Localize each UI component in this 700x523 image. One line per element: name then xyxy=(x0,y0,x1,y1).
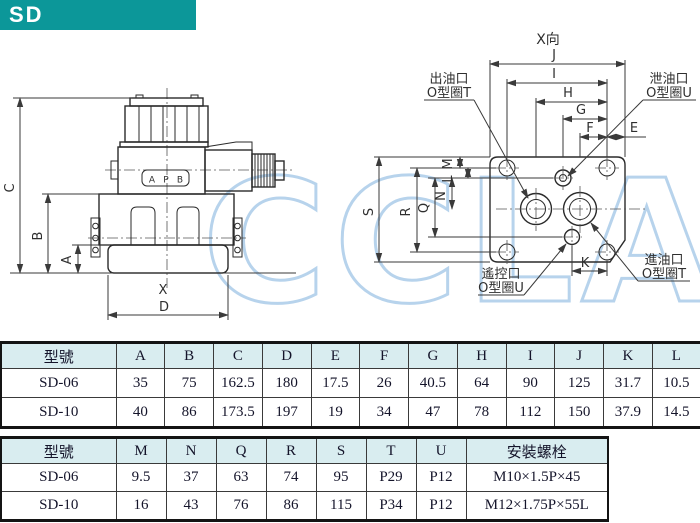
value-cell: 150 xyxy=(555,398,604,428)
value-cell: 26 xyxy=(360,369,409,398)
right-view-top-dimensions: J I H G F E xyxy=(490,48,646,157)
model-cell: SD-06 xyxy=(1,464,116,492)
value-cell: 16 xyxy=(116,492,166,521)
page-title: SD xyxy=(0,0,196,30)
model-cell: SD-10 xyxy=(1,492,116,521)
port-letter-b: B xyxy=(177,176,183,186)
bolt-cell: M10×1.5P×45 xyxy=(466,464,608,492)
dim-label-H: H xyxy=(563,86,573,101)
table2-header-cell: T xyxy=(366,438,416,464)
left-view-centerlines xyxy=(88,88,293,288)
inlet-port-label: 進油口 xyxy=(644,253,683,268)
dim-label-I: I xyxy=(552,67,556,82)
dim-label-C: C xyxy=(3,183,18,192)
value-cell: 197 xyxy=(262,398,311,428)
value-cell: 40 xyxy=(116,398,165,428)
table2-header-cell: U xyxy=(416,438,466,464)
value-cell: 86 xyxy=(165,398,214,428)
table2-header-cell: Q xyxy=(216,438,266,464)
inlet-oring-label: O型圈T xyxy=(642,267,686,282)
outlet-port-label: 出油口 xyxy=(429,72,468,87)
value-cell: 74 xyxy=(266,464,316,492)
left-view-dimensions: C B A X D xyxy=(3,98,296,320)
value-cell: 64 xyxy=(457,369,506,398)
value-cell: P12 xyxy=(416,492,466,521)
dim-label-X: X xyxy=(159,283,168,298)
value-cell: 173.5 xyxy=(214,398,263,428)
remote-port-label: 遙控口 xyxy=(481,267,520,282)
table1-header-cell: C xyxy=(214,343,263,369)
dim-label-N: N xyxy=(434,191,449,201)
drain-oring-label: O型圈U xyxy=(646,86,692,101)
table1-header-cell: G xyxy=(409,343,458,369)
dim-label-M: M xyxy=(441,158,456,169)
datasheet-page: SD CCLAIR xyxy=(0,0,700,523)
value-cell: P34 xyxy=(366,492,416,521)
value-cell: 125 xyxy=(555,369,604,398)
outlet-oring-label: O型圈T xyxy=(427,86,471,101)
model-cell: SD-10 xyxy=(1,398,116,428)
dim-label-A: A xyxy=(60,255,75,264)
table1-header-cell: D xyxy=(262,343,311,369)
table1-row-sd10: SD-10 40 86 173.5 197 19 34 47 78 112 15… xyxy=(1,398,700,428)
plate-ports xyxy=(499,160,615,260)
series-banner: SD xyxy=(0,0,196,30)
table1-header-cell: B xyxy=(165,343,214,369)
value-cell: P29 xyxy=(366,464,416,492)
right-view-bottom-dimension: K xyxy=(572,246,607,276)
left-view-drawing: A P B C B A X D xyxy=(3,88,296,320)
table1-header-cell: H xyxy=(457,343,506,369)
dim-label-S: S xyxy=(362,208,377,216)
table2-header-cell: N xyxy=(166,438,216,464)
table1-row-sd06: SD-06 35 75 162.5 180 17.5 26 40.5 64 90… xyxy=(1,369,700,398)
dim-label-Q: Q xyxy=(417,203,432,213)
value-cell: 37.9 xyxy=(604,398,653,428)
value-cell: 9.5 xyxy=(116,464,166,492)
dim-label-G: G xyxy=(576,103,586,118)
value-cell: 95 xyxy=(316,464,366,492)
value-cell: 10.5 xyxy=(652,369,700,398)
table1-header-cell: K xyxy=(604,343,653,369)
drain-port-label: 泄油口 xyxy=(649,72,688,87)
port-label-plate: A P B xyxy=(142,170,189,186)
value-cell: 34 xyxy=(360,398,409,428)
right-view-left-dimensions: S R Q N M L xyxy=(362,157,562,262)
value-cell: 63 xyxy=(216,464,266,492)
value-cell: 90 xyxy=(506,369,555,398)
table2-row-sd10: SD-10 16 43 76 86 115 P34 P12 M12×1.75P×… xyxy=(1,492,608,521)
value-cell: 115 xyxy=(316,492,366,521)
dimension-drawings: A P B C B A X D xyxy=(0,30,700,330)
spec-table-dimensions-a-l: 型號 A B C D E F G H I J K L SD-06 35 75 1… xyxy=(0,341,700,429)
table1-header-cell: A xyxy=(116,343,165,369)
value-cell: 31.7 xyxy=(604,369,653,398)
spec-table-dimensions-m-u: 型號 M N Q R S T U 安裝螺栓 SD-06 9.5 37 63 74… xyxy=(0,436,609,522)
table1-header-cell: I xyxy=(506,343,555,369)
value-cell: 37 xyxy=(166,464,216,492)
value-cell: P12 xyxy=(416,464,466,492)
value-cell: 35 xyxy=(116,369,165,398)
value-cell: 43 xyxy=(166,492,216,521)
value-cell: 162.5 xyxy=(214,369,263,398)
dim-label-B: B xyxy=(31,232,46,241)
table2-header-cell: S xyxy=(316,438,366,464)
value-cell: 75 xyxy=(165,369,214,398)
value-cell: 86 xyxy=(266,492,316,521)
table2-header-cell: R xyxy=(266,438,316,464)
table1-header-model: 型號 xyxy=(1,343,116,369)
dim-label-F: F xyxy=(586,121,593,136)
value-cell: 17.5 xyxy=(311,369,360,398)
value-cell: 78 xyxy=(457,398,506,428)
value-cell: 180 xyxy=(262,369,311,398)
port-letter-a: A xyxy=(149,176,156,186)
value-cell: 19 xyxy=(311,398,360,428)
table2-header-bolt: 安裝螺栓 xyxy=(466,438,608,464)
view-direction-label: X向 xyxy=(536,32,560,48)
value-cell: 76 xyxy=(216,492,266,521)
model-cell: SD-06 xyxy=(1,369,116,398)
value-cell: 47 xyxy=(409,398,458,428)
dim-label-D: D xyxy=(159,300,169,315)
value-cell: 14.5 xyxy=(652,398,700,428)
bolt-cell: M12×1.75P×55L xyxy=(466,492,608,521)
dim-label-L: L xyxy=(441,175,456,183)
value-cell: 40.5 xyxy=(409,369,458,398)
callout-inlet-port: 進油口 O型圈T xyxy=(591,223,690,282)
table1-header-cell: L xyxy=(652,343,700,369)
remote-oring-label: O型圈U xyxy=(478,281,524,296)
port-letter-p: P xyxy=(163,176,169,186)
dim-label-J: J xyxy=(551,48,556,63)
value-cell: 112 xyxy=(506,398,555,428)
right-view-drawing: X向 xyxy=(362,32,696,296)
table2-row-sd06: SD-06 9.5 37 63 74 95 P29 P12 M10×1.5P×4… xyxy=(1,464,608,492)
dim-label-K: K xyxy=(581,256,590,271)
callout-outlet-port: 出油口 O型圈T xyxy=(424,72,528,198)
table2-header-model: 型號 xyxy=(1,438,116,464)
table1-header-cell: F xyxy=(360,343,409,369)
table2-header-cell: M xyxy=(116,438,166,464)
table1-header-row: 型號 A B C D E F G H I J K L xyxy=(1,343,700,369)
table1-header-cell: E xyxy=(311,343,360,369)
table2-header-row: 型號 M N Q R S T U 安裝螺栓 xyxy=(1,438,608,464)
dim-label-R: R xyxy=(399,207,414,216)
table1-header-cell: J xyxy=(555,343,604,369)
dim-label-E: E xyxy=(630,121,638,136)
